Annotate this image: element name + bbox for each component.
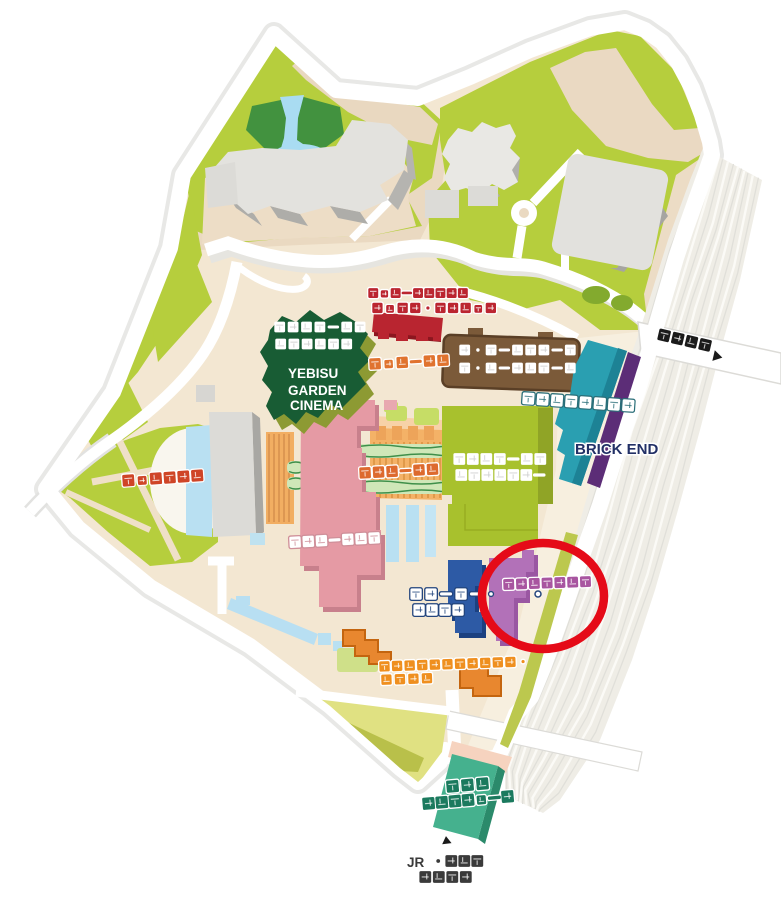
svg-text:YEBISU: YEBISU (288, 366, 338, 381)
svg-text:GARDEN: GARDEN (288, 383, 347, 398)
svg-text:CINEMA: CINEMA (290, 398, 343, 413)
svg-text:BRICK END: BRICK END (575, 441, 659, 458)
svg-text:JR: JR (407, 855, 425, 870)
